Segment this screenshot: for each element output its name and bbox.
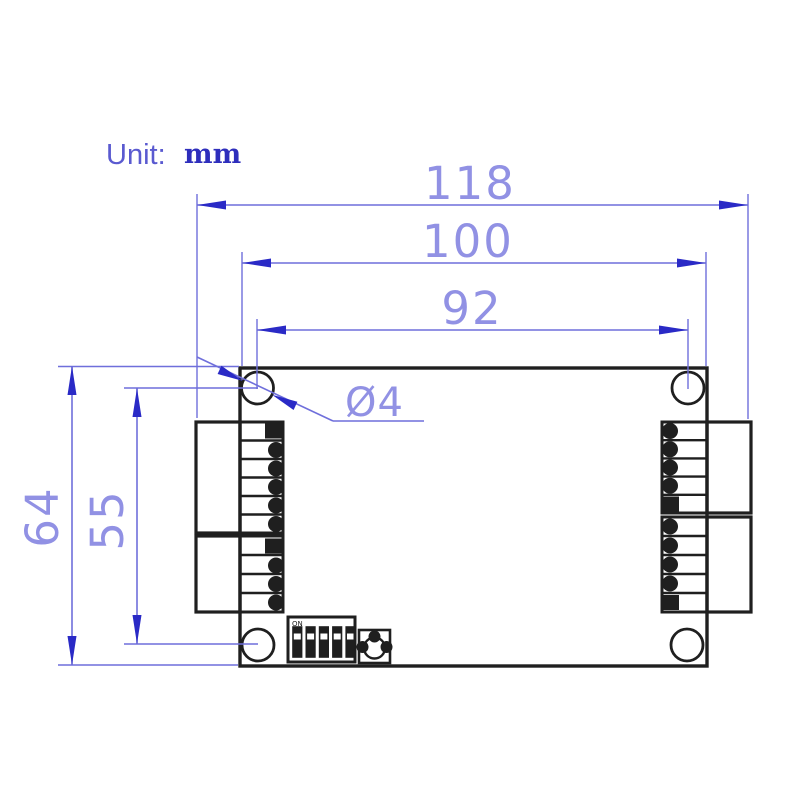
pin-dot bbox=[268, 461, 284, 477]
pin-dot bbox=[268, 558, 284, 574]
left-top-pin-header bbox=[240, 422, 284, 533]
hole-diameter-value: Ø4 bbox=[345, 380, 404, 426]
pcb-dimension-drawing: Unit: mm bbox=[0, 0, 800, 800]
dip-switch-levers bbox=[293, 627, 355, 657]
pin-dot bbox=[268, 516, 284, 532]
arrowhead-top bbox=[133, 388, 142, 417]
right-top-connector bbox=[707, 422, 751, 513]
right-top-pin-header bbox=[661, 422, 707, 513]
pin1-square bbox=[661, 497, 679, 512]
left-bottom-connector bbox=[196, 536, 240, 612]
trimpot-pad-top bbox=[369, 631, 381, 643]
unit-note-label: Unit: bbox=[106, 139, 166, 171]
dimension-value: 64 bbox=[16, 486, 69, 547]
pin-dot bbox=[268, 595, 284, 611]
left-top-connector bbox=[196, 422, 240, 533]
pin-dot bbox=[662, 538, 678, 554]
unit-note-value: mm bbox=[184, 139, 241, 170]
pin1-square bbox=[661, 595, 679, 610]
pin-dot bbox=[662, 576, 678, 592]
arrowhead-lower bbox=[272, 395, 297, 410]
trimmer-potentiometer bbox=[357, 630, 393, 663]
arrowhead-right bbox=[719, 201, 748, 210]
arrowhead-right bbox=[659, 326, 688, 335]
pin-dot bbox=[662, 478, 678, 494]
arrowhead-bottom bbox=[68, 636, 77, 665]
pin-dot bbox=[268, 576, 284, 592]
unit-note: Unit: mm bbox=[106, 139, 241, 171]
pin-dot bbox=[268, 498, 284, 514]
mounting-hole-bottom-right bbox=[671, 629, 703, 661]
pin1-square bbox=[265, 539, 283, 554]
arrowhead-bottom bbox=[133, 615, 142, 644]
right-bottom-pin-header bbox=[661, 517, 707, 612]
pin-dot bbox=[662, 441, 678, 457]
arrowhead-top bbox=[68, 366, 77, 395]
pin-dot bbox=[662, 423, 678, 439]
pin-dot bbox=[662, 519, 678, 535]
dimension-hole-pitch-x: 92 bbox=[257, 282, 688, 389]
arrowhead-left bbox=[242, 259, 271, 268]
pin-dot bbox=[268, 479, 284, 495]
mounting-hole-bottom-left bbox=[242, 629, 274, 661]
arrowhead-left bbox=[197, 201, 226, 210]
dip-switch: ON bbox=[288, 617, 355, 662]
pin-dot bbox=[662, 557, 678, 573]
left-bottom-pin-header bbox=[240, 536, 284, 612]
trimpot-pad-right bbox=[381, 641, 393, 653]
mechanical-drawing-page: Unit: mm bbox=[0, 0, 800, 800]
arrowhead-right bbox=[677, 259, 706, 268]
pin-dot bbox=[662, 460, 678, 476]
dimension-hole-pitch-y: 55 bbox=[81, 388, 258, 644]
dimension-value: 55 bbox=[81, 489, 134, 550]
dimension-value: 92 bbox=[441, 282, 502, 335]
dimension-value: 100 bbox=[422, 215, 514, 268]
pcb-board-outline bbox=[240, 368, 707, 666]
trimpot-pad-left bbox=[357, 641, 369, 653]
pin-dot bbox=[268, 442, 284, 458]
arrowhead-left bbox=[257, 326, 286, 335]
pin1-square bbox=[265, 424, 283, 439]
dimension-value: 118 bbox=[424, 157, 516, 210]
right-bottom-connector bbox=[707, 517, 751, 612]
